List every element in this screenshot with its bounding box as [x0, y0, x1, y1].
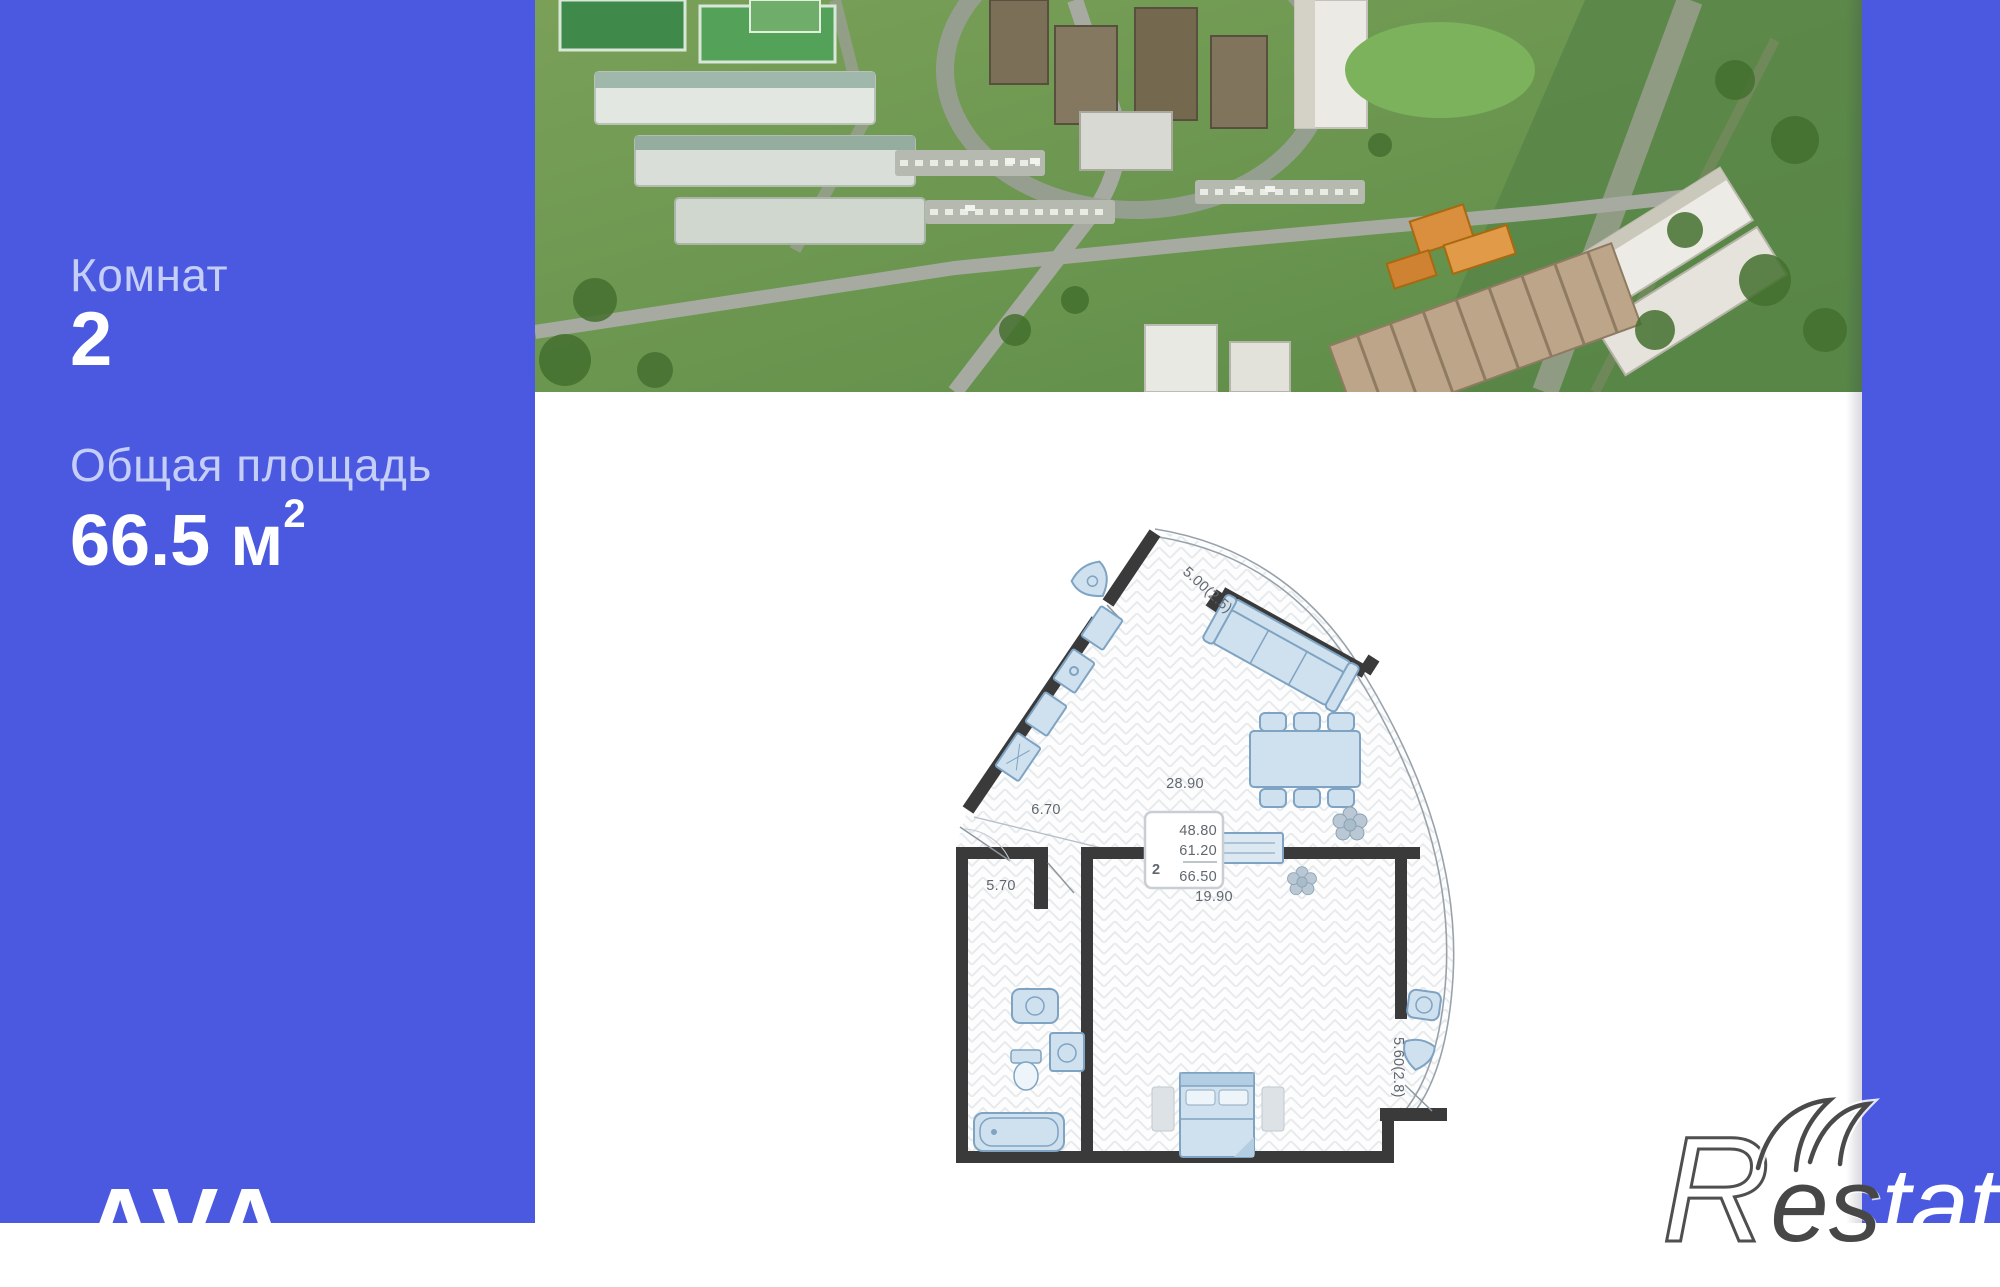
total-area-value: 66.5 м2 — [70, 492, 306, 582]
total-area-label: Общая площадь — [70, 438, 432, 492]
label-right-balcony-area: 5.60(2.8) — [1390, 1037, 1406, 1098]
restate-text-tate: tate — [1881, 1147, 2000, 1264]
strip-shadow — [1846, 0, 1862, 1223]
stat-living-area: 48.80 — [1179, 823, 1217, 839]
label-bedroom-area: 19.90 — [1195, 889, 1233, 905]
balcony-sink — [1406, 989, 1442, 1021]
area-summary-box: 2 48.80 61.20 66.50 — [1145, 812, 1223, 888]
aerial-photo — [535, 0, 1862, 392]
washing-machine — [1050, 1033, 1084, 1071]
label-hallway-area: 6.70 — [1031, 802, 1060, 818]
stat-apartment-area: 61.20 — [1179, 843, 1217, 859]
square-superscript: 2 — [283, 492, 305, 536]
restate-logo-swirl-icon — [1750, 1096, 1890, 1176]
right-accent-strip — [1862, 0, 2000, 1223]
floor-plan-drawing: 28.90 6.70 5.70 19.90 5.00(2.5) 5.60(2.8… — [950, 525, 1470, 1165]
label-bathroom-area: 5.70 — [986, 878, 1015, 894]
rooms-label: Комнат — [70, 248, 228, 302]
restate-watermark: Restate — [1662, 1092, 2000, 1287]
info-panel: Комнат 2 Общая площадь 66.5 м2 AVA — [0, 0, 535, 1223]
floor-plan: 28.90 6.70 5.70 19.90 5.00(2.5) 5.60(2.8… — [950, 525, 1470, 1165]
ava-logo: AVA — [84, 1174, 289, 1274]
bathroom-sink — [1012, 989, 1058, 1023]
bathtub — [974, 1113, 1064, 1151]
toilet — [1011, 1050, 1041, 1090]
dining-table — [1250, 713, 1360, 807]
stat-rooms-count: 2 — [1152, 862, 1160, 878]
label-kitchen-living-area: 28.90 — [1166, 776, 1204, 792]
rooms-value: 2 — [70, 296, 112, 383]
aerial-photo-art — [535, 0, 1862, 392]
stat-total-area: 66.50 — [1179, 869, 1217, 885]
